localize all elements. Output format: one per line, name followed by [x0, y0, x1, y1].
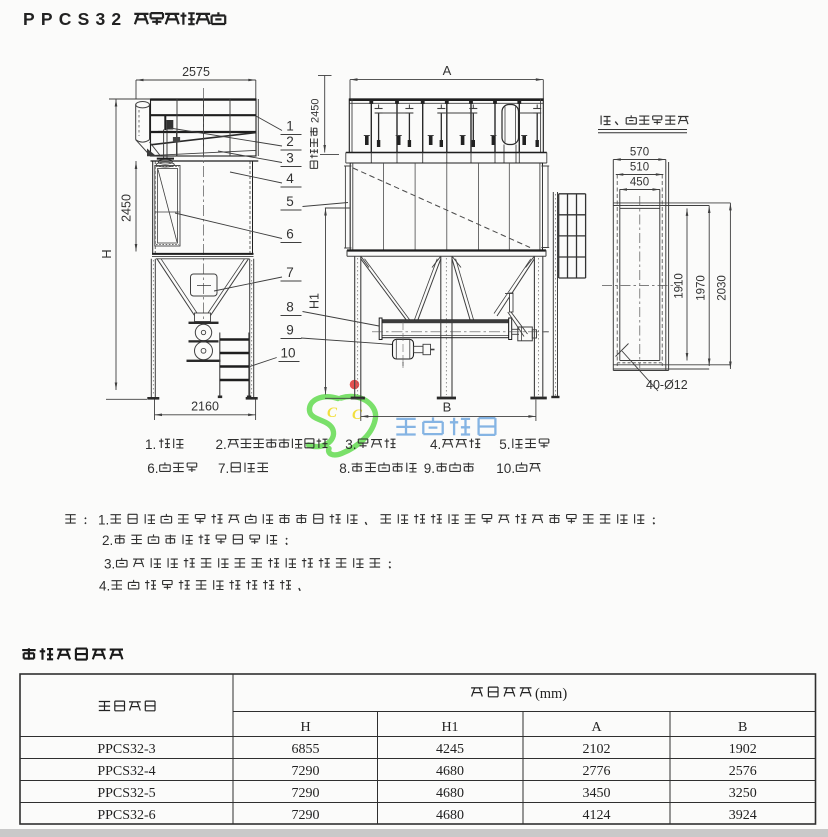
svg-text:8: 8 [286, 300, 294, 315]
svg-text:7290: 7290 [292, 786, 320, 801]
svg-text:450: 450 [630, 177, 649, 189]
svg-text:10.: 10. [496, 461, 515, 476]
svg-text:1.: 1. [98, 513, 109, 528]
svg-text:2102: 2102 [583, 742, 611, 757]
svg-text:1: 1 [286, 119, 294, 134]
svg-text:H: H [300, 720, 310, 735]
svg-text:3250: 3250 [729, 786, 757, 801]
svg-text:4.: 4. [99, 579, 110, 594]
svg-text:3: 3 [286, 151, 294, 166]
svg-text:2160: 2160 [191, 400, 219, 414]
svg-text:40-Ø12: 40-Ø12 [646, 378, 688, 392]
svg-text:3924: 3924 [729, 808, 757, 823]
svg-text:1910: 1910 [673, 273, 685, 299]
svg-text:H1: H1 [441, 720, 458, 735]
svg-text:2575: 2575 [182, 65, 210, 79]
svg-text:PPCS32-5: PPCS32-5 [97, 786, 155, 801]
svg-text:4680: 4680 [436, 808, 464, 823]
svg-text:C: C [352, 407, 363, 423]
svg-text:PPCS32-3: PPCS32-3 [97, 742, 155, 757]
svg-text:5: 5 [286, 194, 294, 209]
svg-text:2776: 2776 [583, 764, 611, 779]
svg-text:1902: 1902 [729, 742, 757, 757]
svg-text:2.: 2. [216, 437, 227, 452]
svg-text:PPCS32-4: PPCS32-4 [97, 764, 155, 779]
svg-text:7.: 7. [218, 461, 229, 476]
svg-text:570: 570 [630, 147, 649, 159]
svg-text:PPCS32: PPCS32 [23, 9, 127, 29]
svg-text:4124: 4124 [583, 808, 611, 823]
svg-text:3450: 3450 [583, 786, 611, 801]
svg-text:7: 7 [286, 265, 294, 280]
svg-text:2: 2 [286, 134, 294, 149]
svg-text:6: 6 [286, 227, 294, 242]
svg-text:7290: 7290 [292, 808, 320, 823]
svg-text:H1: H1 [308, 293, 322, 309]
svg-text:5.: 5. [499, 437, 510, 452]
svg-text:3.: 3. [345, 437, 356, 452]
svg-text:6.: 6. [147, 461, 158, 476]
svg-text:C: C [327, 405, 338, 421]
svg-text:9: 9 [286, 323, 294, 338]
svg-text:2450: 2450 [120, 194, 134, 222]
svg-text:(mm): (mm) [535, 686, 567, 702]
svg-text:B: B [443, 400, 452, 415]
svg-text:1970: 1970 [696, 275, 708, 301]
svg-text:8.: 8. [339, 461, 350, 476]
svg-text:2.: 2. [102, 533, 113, 548]
svg-text:1.: 1. [145, 437, 156, 452]
svg-text:B: B [738, 720, 747, 735]
svg-text:PPCS32-6: PPCS32-6 [97, 808, 155, 823]
svg-text:2576: 2576 [729, 764, 757, 779]
svg-text:H: H [99, 249, 114, 258]
svg-text:4: 4 [286, 171, 294, 186]
svg-text:4680: 4680 [436, 764, 464, 779]
svg-text:510: 510 [630, 162, 649, 174]
svg-text:10: 10 [280, 346, 295, 361]
svg-text:A: A [443, 63, 452, 78]
svg-text:A: A [591, 720, 602, 735]
svg-text:2030: 2030 [717, 275, 729, 301]
svg-text:9.: 9. [424, 461, 435, 476]
svg-text:6855: 6855 [292, 742, 320, 757]
svg-text:4680: 4680 [436, 786, 464, 801]
svg-text:3.: 3. [104, 557, 115, 572]
svg-text:7290: 7290 [292, 764, 320, 779]
svg-text:4245: 4245 [436, 742, 464, 757]
svg-text:2450: 2450 [310, 98, 322, 126]
svg-text:4.: 4. [430, 437, 441, 452]
